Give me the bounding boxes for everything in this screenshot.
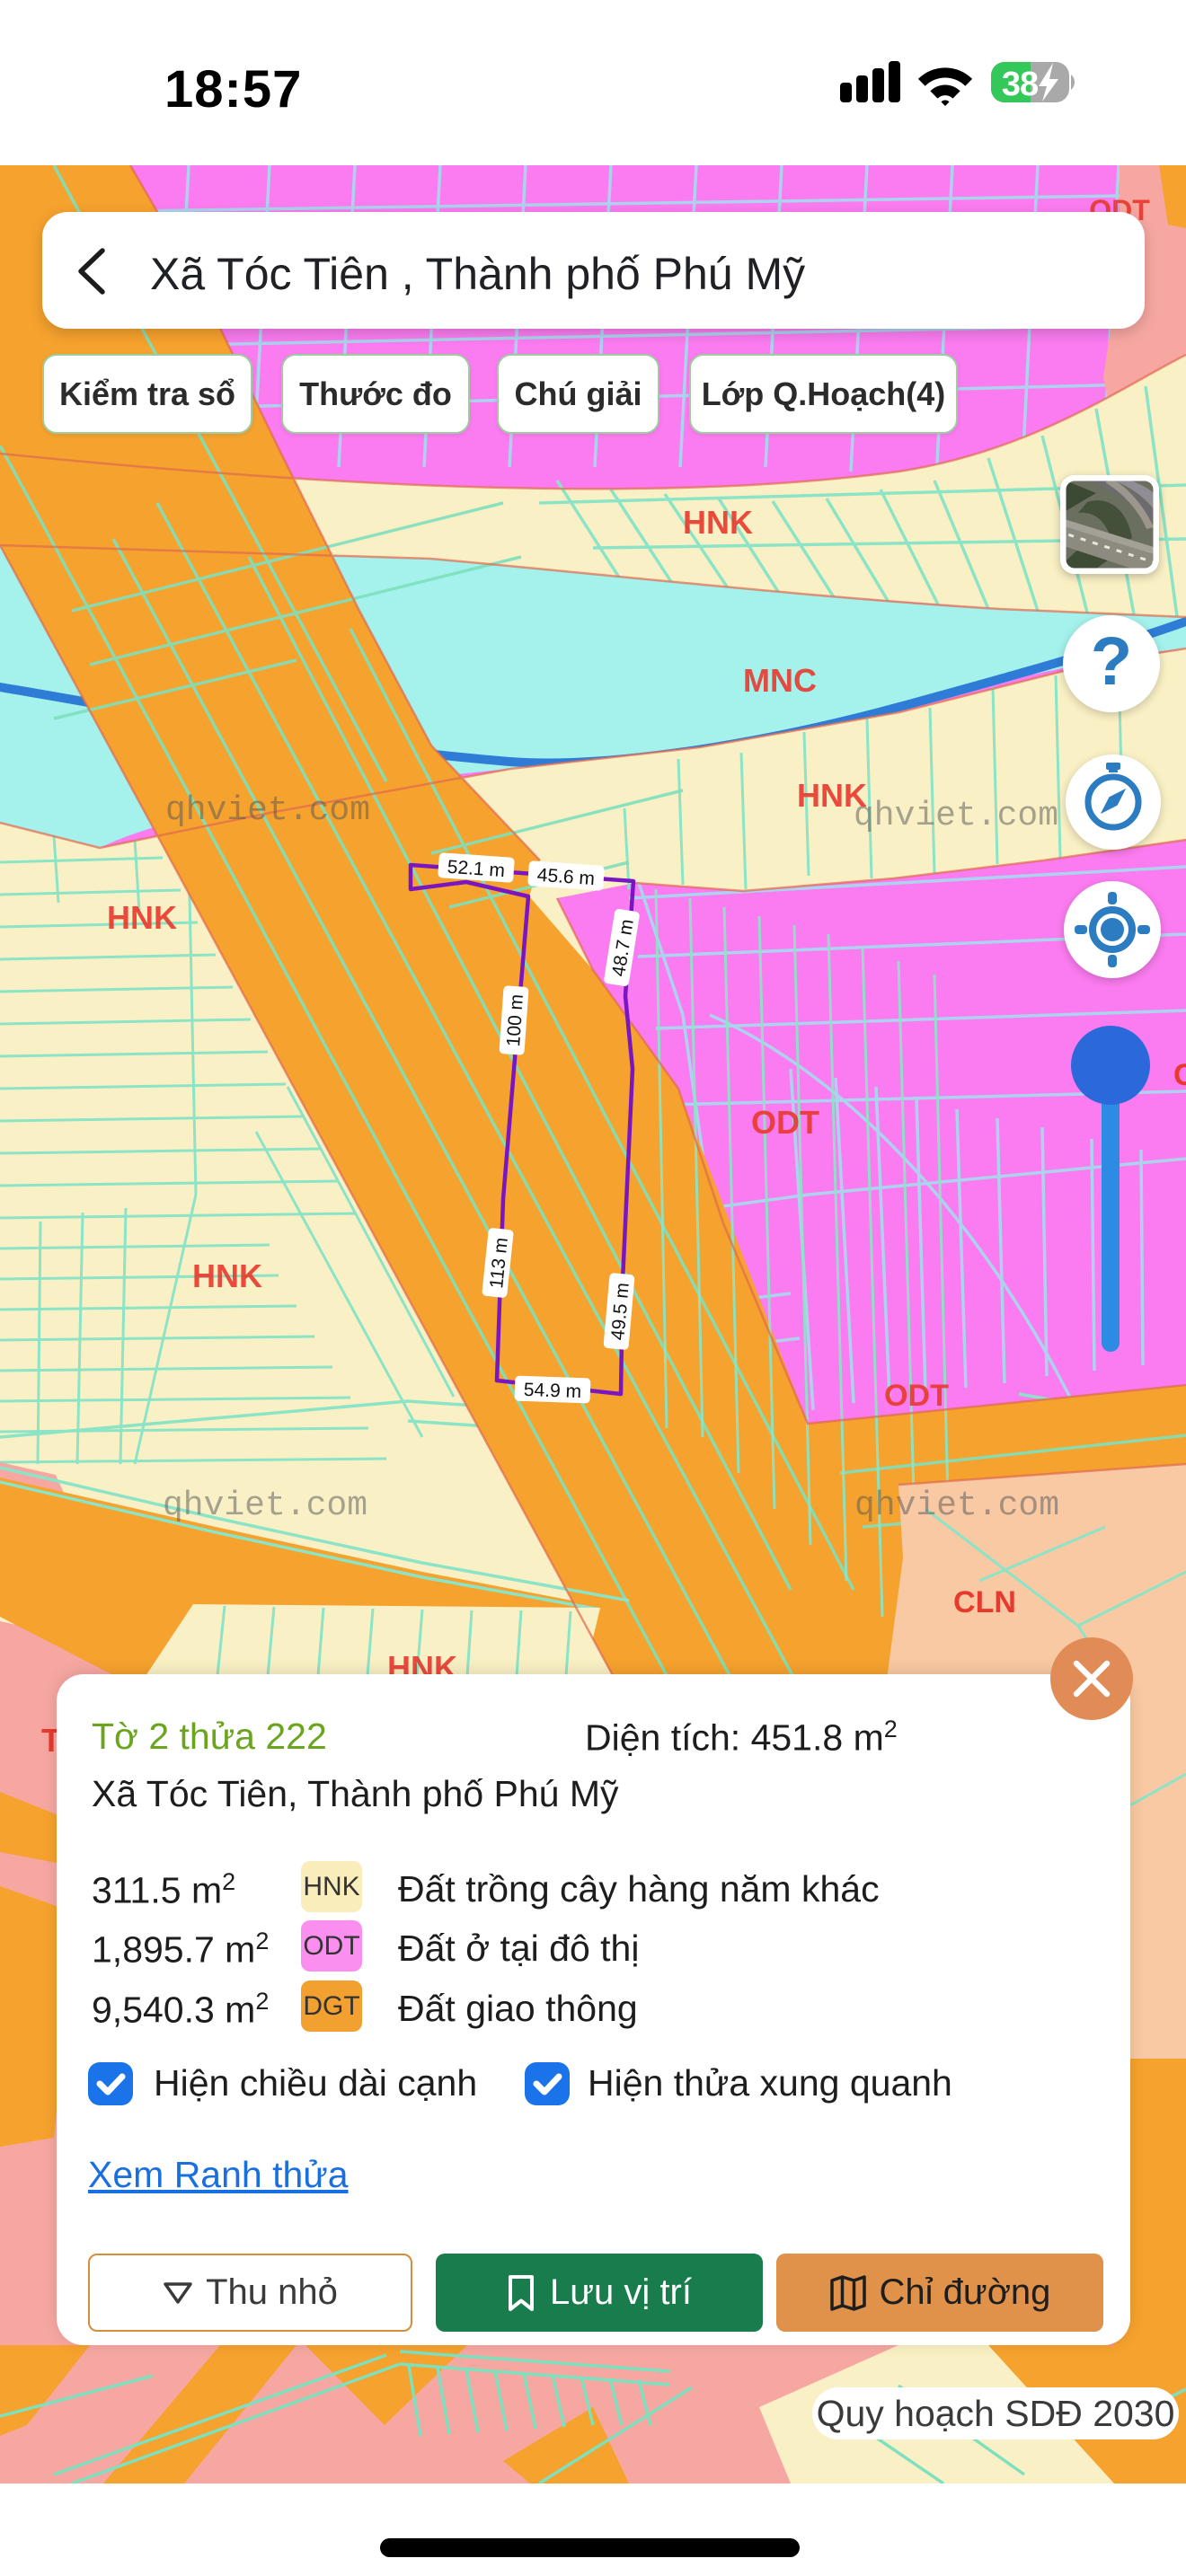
svg-text:HNK: HNK [797,777,867,814]
svg-text:ODT: ODT [884,1379,949,1413]
svg-text:qhviet.com: qhviet.com [854,1486,1059,1525]
svg-text:qhviet.com: qhviet.com [854,797,1058,835]
svg-text:52.1 m: 52.1 m [447,857,506,881]
svg-text:54.9 m: 54.9 m [523,1380,581,1402]
svg-text:MNC: MNC [743,662,817,699]
svg-text:HNK: HNK [107,899,177,936]
svg-text:38: 38 [1002,66,1038,103]
svg-text:45.6 m: 45.6 m [536,865,596,889]
svg-text:qhviet.com: qhviet.com [163,1486,367,1525]
svg-text:ODT: ODT [751,1104,819,1141]
svg-text:qhviet.com: qhviet.com [165,791,370,830]
svg-text:CLN: CLN [953,1585,1016,1619]
svg-text:C: C [1173,1058,1186,1092]
svg-text:100 m: 100 m [503,993,527,1047]
svg-text:HNK: HNK [683,504,753,541]
svg-text:HNK: HNK [192,1257,262,1294]
